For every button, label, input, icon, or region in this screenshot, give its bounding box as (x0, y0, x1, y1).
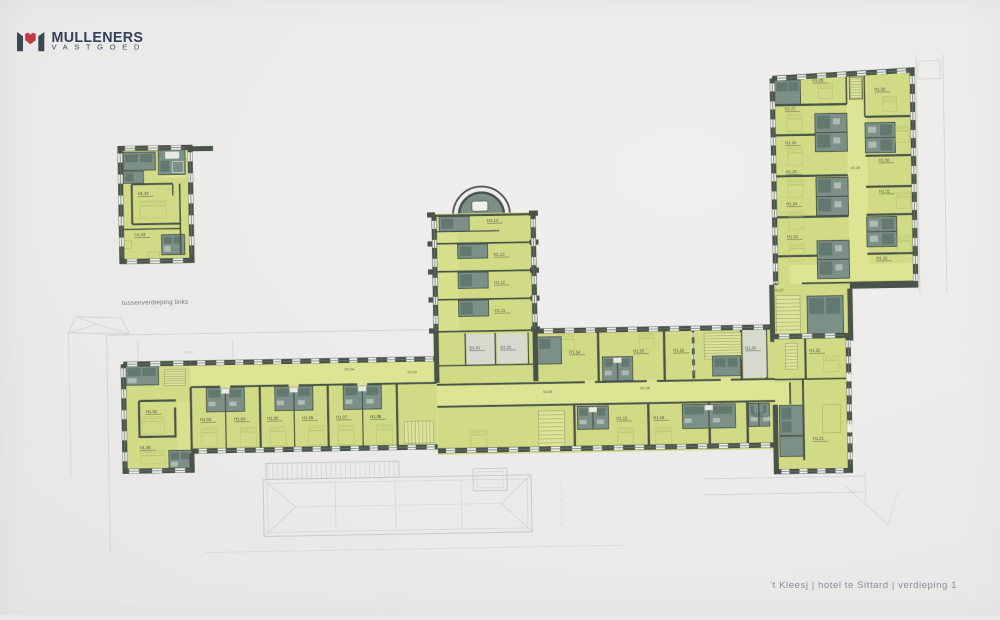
svg-text:V1.07: V1.07 (775, 289, 784, 293)
svg-text:H1.02: H1.02 (146, 409, 158, 414)
svg-text:V1.05: V1.05 (543, 390, 552, 394)
svg-text:H1.16: H1.16 (653, 415, 665, 420)
svg-text:V1.05: V1.05 (184, 351, 193, 355)
svg-text:D1.01: D1.01 (469, 345, 481, 350)
svg-text:H1.06: H1.06 (302, 415, 314, 420)
svg-text:H1.07: H1.07 (336, 414, 348, 419)
svg-text:V1.04: V1.04 (344, 367, 354, 371)
svg-text:H1.21: H1.21 (813, 436, 825, 441)
svg-text:H1.13: H1.13 (494, 252, 506, 257)
svg-text:H1.34: H1.34 (138, 191, 150, 196)
svg-text:’t Kleesj | hotel te Sittard |: ’t Kleesj | hotel te Sittard | verdiepin… (770, 580, 957, 591)
svg-text:H1.08: H1.08 (370, 414, 382, 419)
svg-text:H1.26: H1.26 (785, 140, 797, 145)
svg-text:D1.03: D1.03 (745, 345, 757, 350)
svg-text:V1.06: V1.06 (640, 386, 650, 390)
svg-text:H1.04: H1.04 (234, 416, 246, 421)
svg-text:V1.09: V1.09 (851, 166, 860, 170)
svg-text:H1.12: H1.12 (494, 280, 506, 285)
svg-text:H1.05: H1.05 (140, 445, 152, 450)
svg-text:H1.17: H1.17 (752, 411, 764, 416)
svg-text:H1.30: H1.30 (879, 157, 891, 162)
svg-text:H1.03: H1.03 (200, 417, 212, 422)
svg-text:H1.16: H1.16 (673, 348, 685, 353)
svg-text:H1.27: H1.27 (785, 106, 797, 111)
svg-text:H1.31: H1.31 (879, 188, 891, 193)
svg-text:H1.33: H1.33 (134, 232, 146, 237)
svg-text:H1.05: H1.05 (267, 416, 279, 421)
svg-text:H1.15: H1.15 (616, 416, 628, 421)
svg-text:H1.24: H1.24 (786, 201, 798, 206)
svg-text:H1.32: H1.32 (876, 255, 888, 260)
svg-text:D1.02: D1.02 (500, 345, 512, 350)
svg-text:H1.23: H1.23 (787, 234, 799, 239)
svg-text:H1.14: H1.14 (569, 349, 581, 354)
svg-text:H1.25: H1.25 (786, 169, 798, 174)
svg-text:tussenverdieping links: tussenverdieping links (122, 299, 188, 307)
svg-text:H1.14: H1.14 (487, 218, 499, 223)
svg-text:H1.29: H1.29 (874, 86, 886, 91)
svg-text:H1.22: H1.22 (809, 348, 821, 353)
svg-text:H1.11: H1.11 (495, 308, 506, 313)
svg-text:VASTGOED: VASTGOED (52, 43, 146, 52)
svg-text:V1.03: V1.03 (407, 370, 416, 374)
